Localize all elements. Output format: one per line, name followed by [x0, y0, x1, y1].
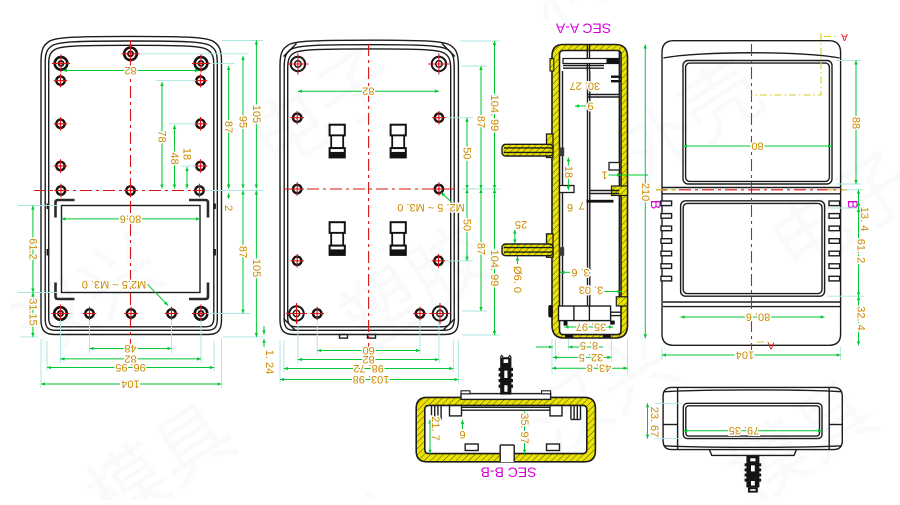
svg-text:21. 7: 21. 7 — [429, 416, 441, 440]
svg-text:31.15: 31.15 — [26, 298, 38, 326]
svg-text:3. 03: 3. 03 — [579, 284, 603, 296]
svg-text:M2.5 ~ M3. 0: M2.5 ~ M3. 0 — [82, 278, 147, 290]
svg-text:104: 104 — [736, 349, 754, 361]
svg-text:105: 105 — [250, 259, 262, 277]
svg-text:80: 80 — [751, 140, 763, 152]
svg-text:87: 87 — [475, 116, 487, 128]
svg-text:8. 5: 8. 5 — [580, 339, 598, 351]
svg-text:6: 6 — [567, 201, 573, 213]
svg-text:96. 95: 96. 95 — [115, 361, 146, 373]
svg-text:3. 6: 3. 6 — [571, 266, 589, 278]
svg-text:78: 78 — [156, 130, 168, 142]
svg-text:2: 2 — [222, 205, 234, 211]
svg-text:Ø6. 0: Ø6. 0 — [511, 266, 523, 293]
svg-text:A: A — [767, 339, 774, 350]
svg-text:48: 48 — [124, 342, 136, 354]
svg-text:88: 88 — [850, 117, 862, 129]
svg-text:32. 5: 32. 5 — [579, 351, 603, 363]
svg-text:104: 104 — [121, 378, 139, 390]
svg-text:87: 87 — [475, 243, 487, 255]
svg-text:A: A — [841, 31, 848, 42]
svg-text:50: 50 — [461, 147, 473, 159]
svg-text:35. 97: 35. 97 — [518, 413, 530, 444]
svg-text:SEC B-B: SEC B-B — [480, 465, 536, 481]
svg-text:18: 18 — [562, 166, 574, 178]
svg-text:103. 98: 103. 98 — [353, 373, 390, 385]
svg-text:80.6: 80.6 — [120, 212, 141, 224]
svg-text:87: 87 — [237, 246, 249, 258]
svg-text:95: 95 — [237, 116, 249, 128]
svg-text:105: 105 — [250, 105, 262, 123]
svg-text:48: 48 — [168, 152, 180, 164]
svg-text:50: 50 — [461, 219, 473, 231]
svg-text:79. 35: 79. 35 — [729, 424, 760, 436]
svg-text:6: 6 — [459, 428, 465, 440]
svg-text:SEC A-A: SEC A-A — [555, 21, 611, 37]
svg-text:104. 99: 104. 99 — [488, 250, 500, 287]
svg-text:18: 18 — [181, 148, 193, 160]
svg-text:210: 210 — [639, 183, 651, 201]
svg-text:23. 67: 23. 67 — [648, 407, 660, 438]
svg-text:7: 7 — [578, 199, 584, 211]
svg-text:98. 72: 98. 72 — [353, 362, 384, 374]
svg-text:30. 27: 30. 27 — [570, 80, 601, 92]
svg-text:13. 4: 13. 4 — [858, 207, 870, 231]
svg-text:25: 25 — [515, 218, 527, 230]
svg-text:61. 2: 61. 2 — [855, 239, 867, 263]
svg-text:35. 97: 35. 97 — [576, 321, 607, 333]
svg-text:43. 8: 43. 8 — [587, 362, 611, 374]
svg-text:M2. 5 ~ M3. 0: M2. 5 ~ M3. 0 — [397, 201, 465, 213]
svg-text:82: 82 — [124, 64, 136, 76]
svg-text:32. 4: 32. 4 — [855, 306, 867, 330]
svg-text:1: 1 — [601, 169, 607, 181]
svg-text:61.2: 61.2 — [26, 238, 38, 259]
svg-text:1. 24: 1. 24 — [263, 350, 275, 374]
svg-text:9: 9 — [587, 100, 593, 112]
svg-text:104. 99: 104. 99 — [488, 95, 500, 132]
svg-text:82: 82 — [362, 85, 374, 97]
svg-text:87: 87 — [222, 121, 234, 133]
svg-text:80. 6: 80. 6 — [746, 311, 770, 323]
